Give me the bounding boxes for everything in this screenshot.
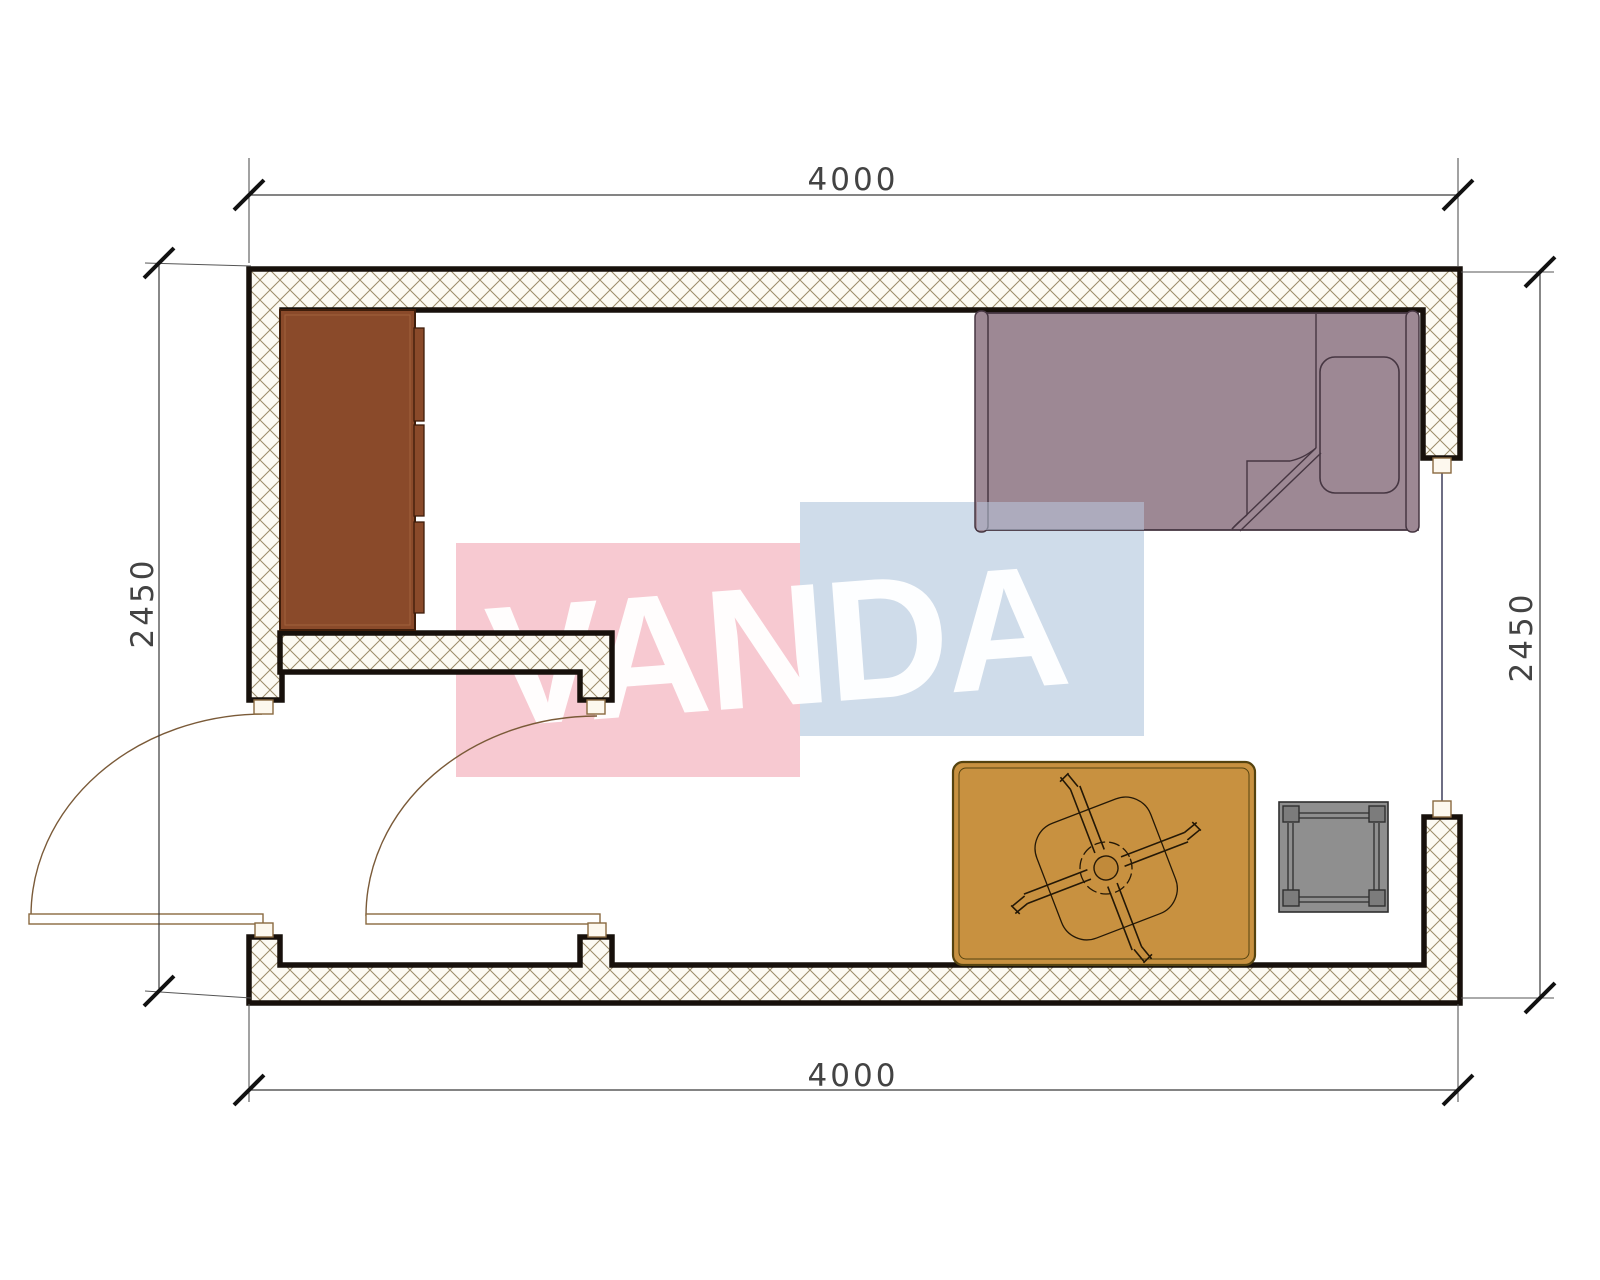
bed-headboard — [1406, 311, 1419, 532]
door-jamb — [254, 700, 273, 714]
wardrobe-door-strip — [414, 328, 424, 421]
door-jamb — [255, 923, 273, 937]
stool-leg — [1283, 890, 1299, 906]
door-swing-arc — [31, 714, 262, 916]
wardrobe-door-strip — [414, 522, 424, 613]
dim-text-bottom: 4000 — [808, 1058, 899, 1094]
right-wall-opening — [1433, 458, 1451, 817]
window-jamb-bottom — [1433, 801, 1451, 817]
stool-leg — [1283, 806, 1299, 822]
dim-text-right: 2450 — [1504, 592, 1540, 683]
stool — [1279, 802, 1388, 912]
wardrobe-body — [280, 310, 415, 630]
dim-text-left: 2450 — [125, 558, 161, 649]
bed-body — [977, 313, 1418, 530]
watermark-overlap-tint — [977, 502, 1144, 530]
single-bed — [975, 311, 1419, 532]
stool-leg — [1369, 806, 1385, 822]
dim-text-top: 4000 — [808, 162, 899, 198]
bed-footboard — [975, 311, 988, 532]
door-jamb — [587, 700, 605, 714]
floor-plan-canvas: VANDA — [0, 0, 1600, 1280]
wardrobe-door-strip — [414, 425, 424, 516]
door-leaf — [366, 914, 600, 924]
window-jamb-top — [1433, 458, 1451, 473]
stool-leg — [1369, 890, 1385, 906]
floor-plan-page: VANDA — [0, 0, 1600, 1280]
door-jamb — [588, 923, 606, 937]
wardrobe — [280, 310, 424, 630]
door-leaf — [29, 914, 263, 924]
